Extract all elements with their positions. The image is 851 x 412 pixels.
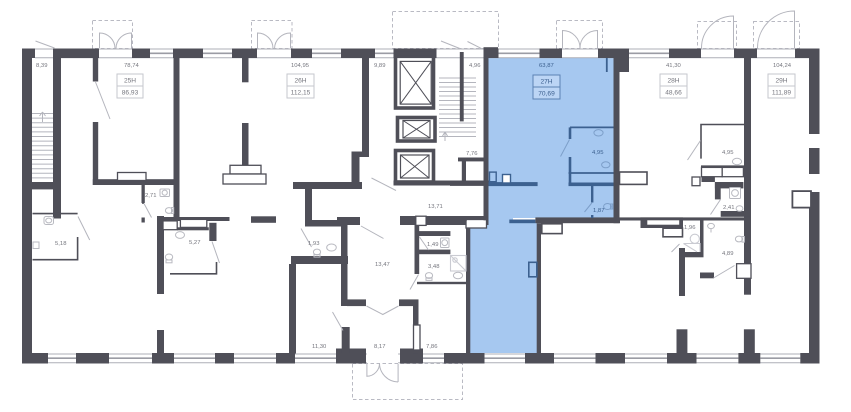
svg-text:78,74: 78,74 (124, 63, 139, 69)
svg-text:48,66: 48,66 (665, 90, 682, 97)
svg-text:7,76: 7,76 (466, 151, 478, 157)
svg-text:7,86: 7,86 (426, 344, 438, 350)
svg-text:13,71: 13,71 (428, 204, 443, 210)
svg-text:5,27: 5,27 (189, 240, 200, 246)
svg-text:25Н: 25Н (124, 78, 136, 85)
svg-text:1,49: 1,49 (427, 242, 438, 248)
svg-text:86,93: 86,93 (122, 90, 139, 97)
svg-text:3,48: 3,48 (428, 264, 440, 270)
svg-text:104,95: 104,95 (291, 63, 310, 69)
svg-text:29Н: 29Н (775, 78, 787, 85)
svg-text:4,95: 4,95 (592, 150, 604, 156)
svg-text:27Н: 27Н (540, 79, 552, 86)
svg-text:41,30: 41,30 (666, 63, 681, 69)
svg-text:5,18: 5,18 (55, 241, 67, 247)
svg-text:104,24: 104,24 (773, 63, 792, 69)
svg-text:111,89: 111,89 (772, 90, 792, 97)
svg-text:4,95: 4,95 (722, 150, 734, 156)
svg-text:28Н: 28Н (667, 78, 679, 85)
svg-text:4,89: 4,89 (722, 251, 733, 257)
svg-text:9,89: 9,89 (374, 63, 385, 69)
svg-text:1,93: 1,93 (308, 241, 320, 247)
svg-text:4,96: 4,96 (469, 63, 481, 69)
svg-text:2,41: 2,41 (723, 205, 734, 211)
svg-text:112,15: 112,15 (291, 90, 311, 97)
svg-text:63,87: 63,87 (539, 63, 554, 69)
svg-text:8,17: 8,17 (374, 344, 385, 350)
svg-text:26Н: 26Н (294, 78, 306, 85)
svg-text:1,96: 1,96 (684, 225, 696, 231)
svg-text:1,87: 1,87 (593, 208, 604, 214)
svg-text:70,69: 70,69 (538, 91, 555, 98)
svg-text:11,30: 11,30 (312, 344, 327, 350)
svg-text:13,47: 13,47 (375, 262, 390, 268)
svg-text:2,71: 2,71 (145, 193, 156, 199)
svg-text:8,39: 8,39 (36, 63, 47, 69)
